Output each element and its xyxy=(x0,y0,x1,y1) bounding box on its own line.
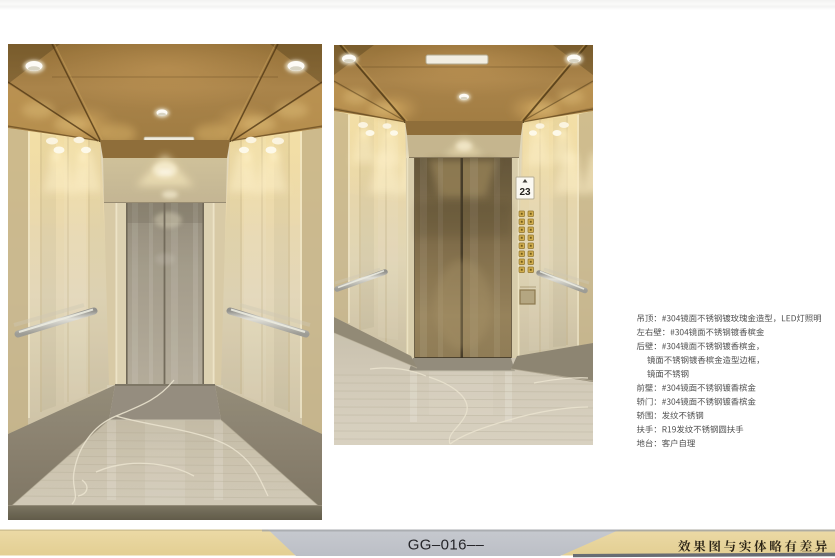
svg-text:GG–016––: GG–016–– xyxy=(408,537,485,554)
